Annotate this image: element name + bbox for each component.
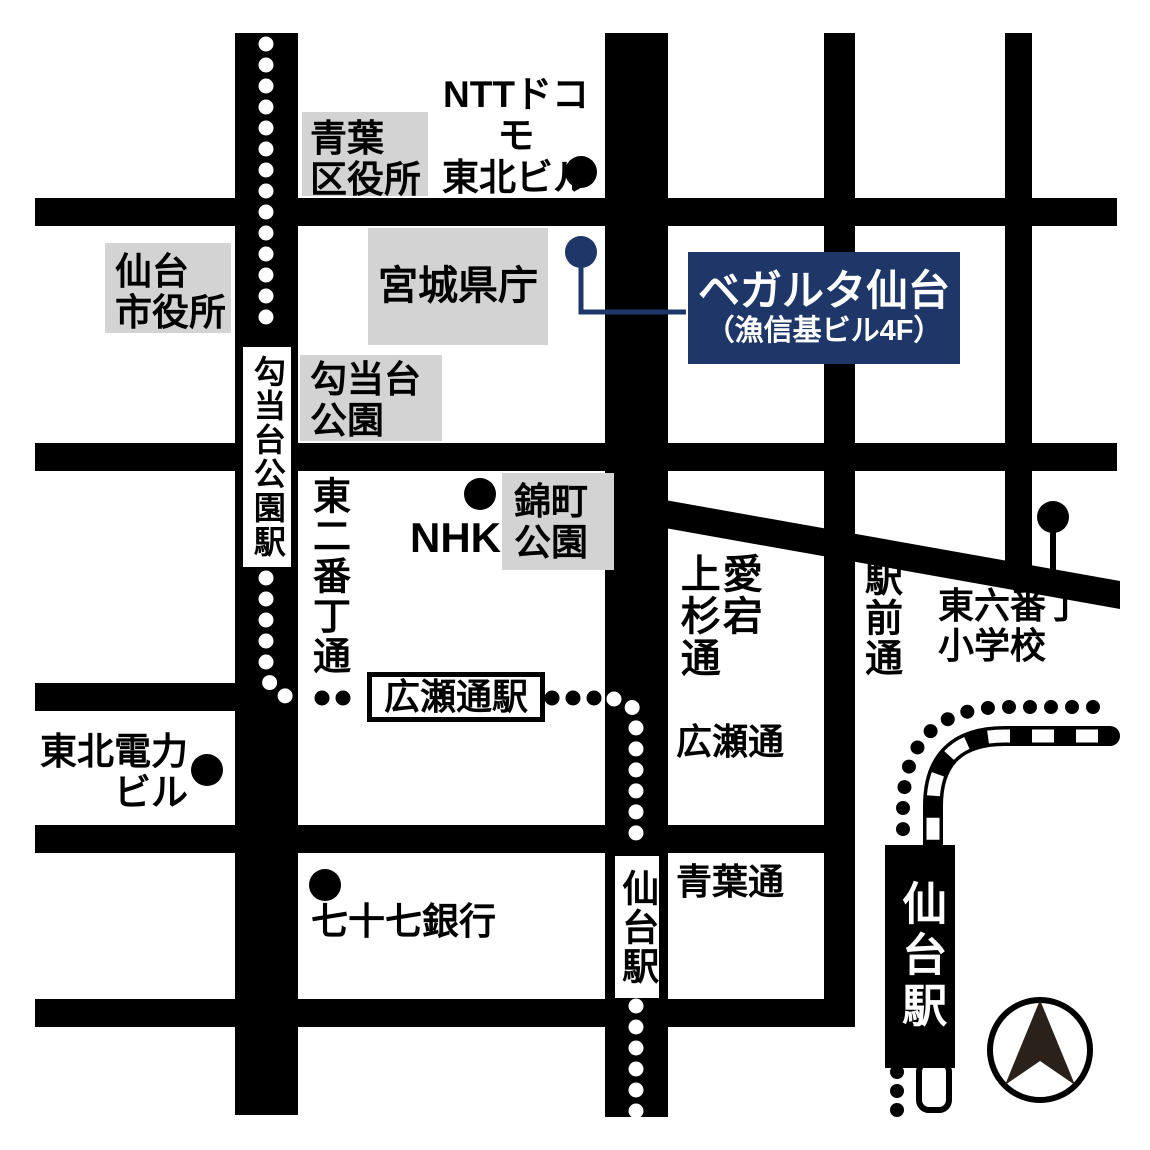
label-tohoku-electric: 東北電力 ビル xyxy=(40,731,188,814)
label-aoba-ward-office: 青葉 区役所 xyxy=(302,112,428,196)
label-aoba-street: 青葉通 xyxy=(676,862,784,902)
label-miyagi-pref-office: 宮城県庁 xyxy=(368,228,548,345)
road-horizontal-2 xyxy=(35,443,1117,471)
tohoku-electric-dot-icon xyxy=(191,754,223,786)
label-77-bank: 七十七銀行 xyxy=(311,901,496,942)
compass-north-icon xyxy=(990,1000,1090,1100)
station-sign-sendai-road: 仙台駅 xyxy=(615,856,659,998)
road-horizontal-5-aoba xyxy=(35,999,855,1027)
station-sign-kotodai-koen: 勾当台公園駅 xyxy=(243,347,291,567)
rokubancho-school-dot-icon xyxy=(1037,501,1069,533)
label-rokubancho-school: 東六番丁 小学校 xyxy=(938,586,1082,667)
station-box-sendai-jr: 仙台駅 xyxy=(885,845,955,1068)
label-hirose-street: 広瀬通 xyxy=(676,722,784,762)
jr-track-stripes xyxy=(933,736,1110,845)
label-sendai-city-hall: 仙台 市役所 xyxy=(105,243,231,333)
station-sign-hirose-dori: 広瀬通駅 xyxy=(367,672,545,722)
label-ekimae-street: 駅前通 xyxy=(858,558,901,688)
destination-dot-icon xyxy=(565,236,597,268)
destination-callout-box: ベガルタ仙台 （漁信基ビル4F） xyxy=(688,252,960,364)
label-atago-kamisugi-street-col2: 上杉通 xyxy=(674,553,719,723)
road-horizontal-1 xyxy=(35,198,1117,226)
label-atago-kamisugi-street-col1: 愛宕 xyxy=(716,553,761,673)
jr-track-stub xyxy=(919,1062,949,1110)
label-nhk: NHK xyxy=(410,514,501,561)
road-vertical-right xyxy=(1005,33,1032,570)
bank77-dot-icon xyxy=(309,869,341,901)
label-nishikicho-park: 錦町 公園 xyxy=(502,473,614,570)
label-higashi-nibancho-street: 東二番丁通 xyxy=(306,476,349,686)
nhk-dot-icon xyxy=(464,478,496,510)
label-ntt-docomo: NTTドコモ 東北ビル xyxy=(428,74,604,198)
destination-name: ベガルタ仙台 xyxy=(698,268,950,314)
access-map: NTTドコモ 東北ビル 青葉 区役所 仙台 市役所 宮城県庁 勾当台 公園 錦町… xyxy=(0,0,1150,1150)
label-kotodai-park: 勾当台 公園 xyxy=(300,355,442,441)
destination-building: （漁信基ビル4F） xyxy=(706,314,943,349)
road-horizontal-4-hirose xyxy=(35,825,855,853)
